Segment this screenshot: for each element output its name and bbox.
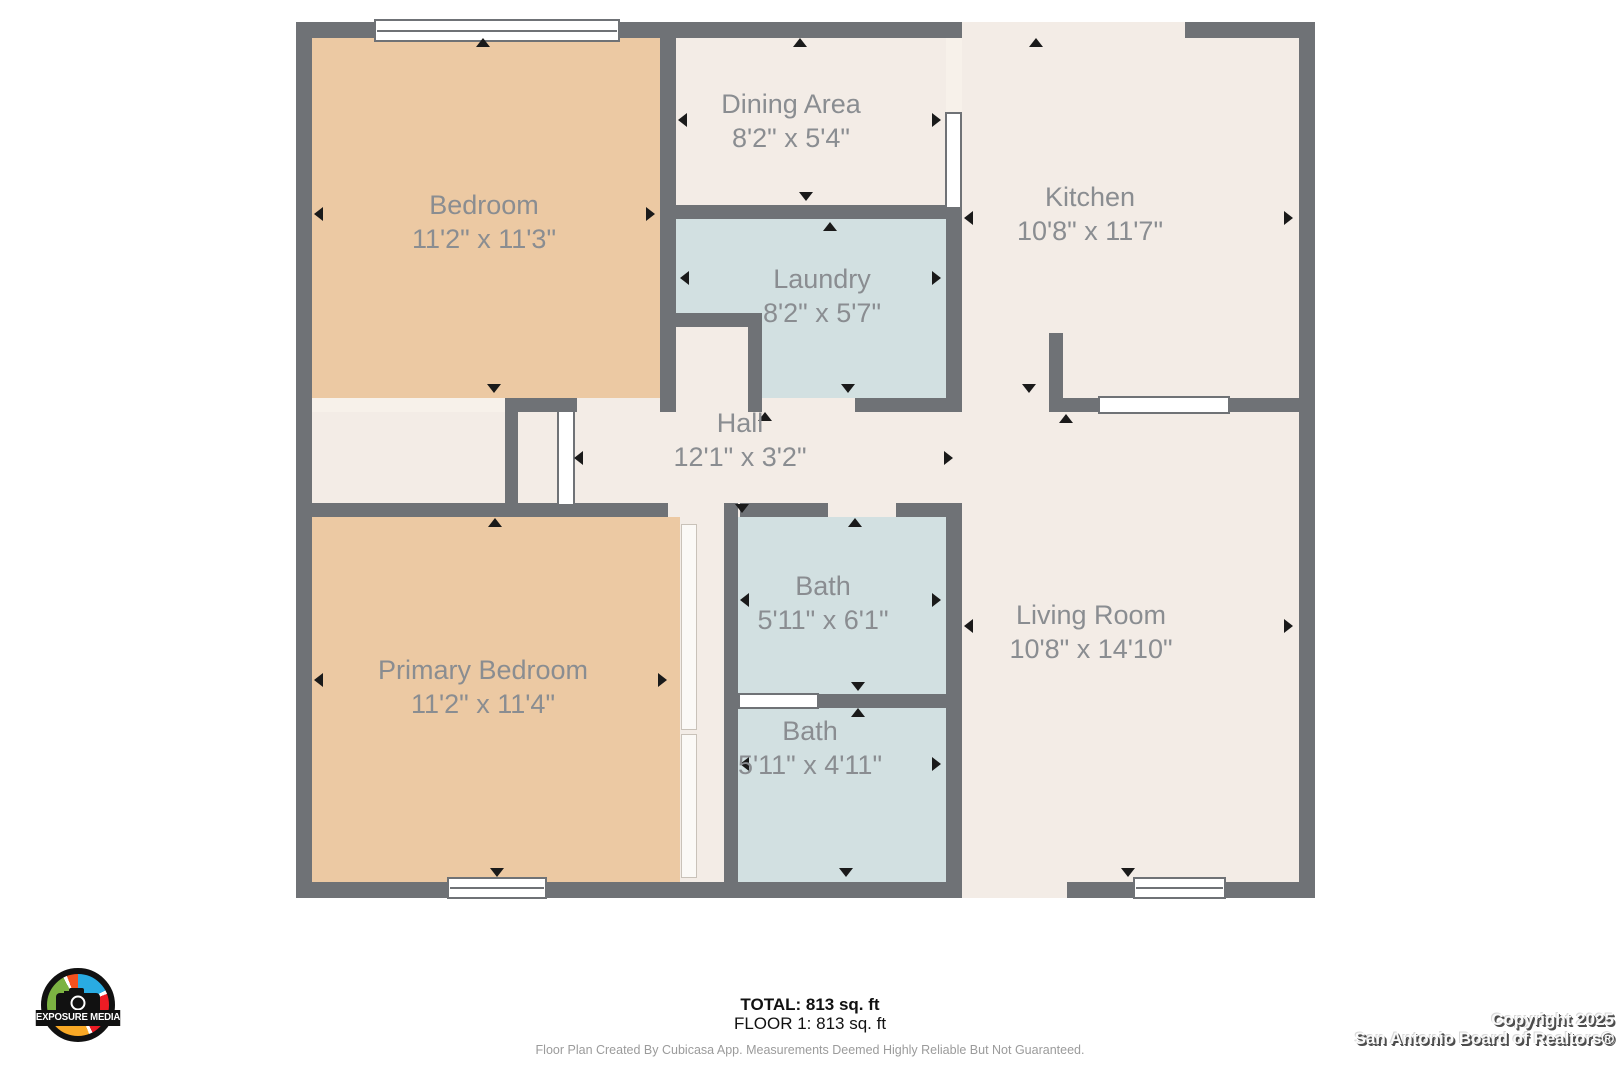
door-bath-divider: [738, 693, 819, 709]
wardrobe-primary-lower: [681, 734, 697, 878]
measure-arrow: [1059, 414, 1073, 423]
measure-arrow: [793, 38, 807, 47]
dining-open-boundary: [946, 38, 962, 114]
room-dims: 10'8" x 11'7": [1017, 214, 1163, 248]
room-dims: 5'11" x 6'1": [757, 603, 888, 637]
window-bedroom-top: [374, 19, 620, 42]
patio-opening: [962, 882, 1067, 898]
measure-arrow: [314, 673, 323, 687]
floor-plan-page: Bedroom 11'2" x 11'3" Dining Area 8'2" x…: [0, 0, 1620, 1080]
disclaimer-text: Floor Plan Created By Cubicasa App. Meas…: [536, 1043, 1085, 1057]
measure-arrow: [487, 384, 501, 393]
measure-arrow: [1029, 38, 1043, 47]
measure-arrow: [646, 207, 655, 221]
wall-nook-right: [748, 313, 762, 412]
window-living-bottom: [1133, 877, 1226, 899]
measure-arrow: [1284, 619, 1293, 633]
wall-bath-top-left: [740, 503, 828, 517]
wall-left: [296, 22, 312, 898]
door-dining-kitchen: [945, 112, 962, 209]
floor-area-text: FLOOR 1: 813 sq. ft: [734, 1014, 886, 1034]
laundry-nook: [676, 327, 748, 412]
measure-arrow: [823, 222, 837, 231]
room-dims: 11'2" x 11'3": [412, 222, 556, 256]
measure-arrow: [944, 451, 953, 465]
room-name: Bath: [738, 714, 882, 748]
measure-arrow: [841, 384, 855, 393]
room-name: Bedroom: [412, 188, 556, 222]
wall-bath-left: [724, 503, 738, 882]
entry-opening: [962, 22, 1185, 38]
measure-arrow: [1284, 211, 1293, 225]
measure-arrow: [476, 38, 490, 47]
room-name: Laundry: [763, 262, 881, 296]
measure-arrow: [488, 518, 502, 527]
room-name: Dining Area: [721, 87, 861, 121]
measure-arrow: [1022, 384, 1036, 393]
measure-arrow: [735, 504, 749, 513]
wall-bedroom-right: [660, 38, 676, 412]
room-name: Hall: [673, 406, 806, 440]
room-dims: 8'2" x 5'7": [763, 296, 881, 330]
copyright-line1: Copyright 2025: [1355, 1010, 1614, 1029]
measure-arrow: [680, 271, 689, 285]
measure-arrow: [932, 113, 941, 127]
room-dims: 8'2" x 5'4": [721, 121, 861, 155]
measure-arrow: [490, 868, 504, 877]
copyright-notice: Copyright 2025 San Antonio Board of Real…: [1355, 1010, 1614, 1048]
measure-arrow: [932, 757, 941, 771]
wall-laundry-bottom: [855, 398, 962, 412]
measure-arrow: [1121, 868, 1135, 877]
room-label-laundry: Laundry 8'2" x 5'7": [763, 262, 881, 330]
window-primary-bottom: [447, 877, 547, 899]
measure-arrow: [964, 619, 973, 633]
wall-bath-right: [946, 503, 962, 882]
room-label-hall: Hall 12'1" x 3'2": [673, 406, 806, 474]
exposure-media-logo: EXPOSURE MEDIA: [34, 966, 122, 1050]
room-label-primary-bedroom: Primary Bedroom 11'2" x 11'4": [378, 653, 588, 721]
kitchen-passthrough: [1098, 396, 1230, 414]
wall-dining-bottom: [676, 205, 962, 219]
room-dims: 10'8" x 14'10": [1009, 632, 1172, 666]
door-linen-closet: [557, 410, 575, 506]
room-name: Primary Bedroom: [378, 653, 588, 687]
closet-open-boundary: [312, 398, 505, 412]
room-label-bath-1: Bath 5'11" x 6'1": [757, 569, 888, 637]
room-label-dining: Dining Area 8'2" x 5'4": [721, 87, 861, 155]
room-name: Bath: [757, 569, 888, 603]
room-name: Kitchen: [1017, 180, 1163, 214]
measure-arrow: [658, 673, 667, 687]
measure-arrow: [740, 593, 749, 607]
logo-banner-text: EXPOSURE MEDIA: [36, 1010, 120, 1026]
measure-arrow: [678, 113, 687, 127]
copyright-line2: San Antonio Board of Realtors®: [1355, 1029, 1614, 1048]
measure-arrow: [932, 271, 941, 285]
room-label-kitchen: Kitchen 10'8" x 11'7": [1017, 180, 1163, 248]
room-dims: 5'11" x 4'11": [738, 748, 882, 782]
wall-laundry-right: [946, 219, 962, 412]
measure-arrow: [314, 207, 323, 221]
room-label-living-room: Living Room 10'8" x 14'10": [1009, 598, 1172, 666]
room-label-bedroom: Bedroom 11'2" x 11'3": [412, 188, 556, 256]
total-area-text: TOTAL: 813 sq. ft: [740, 995, 879, 1015]
room-name: Living Room: [1009, 598, 1172, 632]
room-label-bath-2: Bath 5'11" x 4'11": [738, 714, 882, 782]
measure-arrow: [799, 192, 813, 201]
wardrobe-primary-upper: [681, 524, 697, 730]
wall-hall-bottom-left: [296, 503, 668, 517]
measure-arrow: [848, 518, 862, 527]
measure-arrow: [851, 682, 865, 691]
measure-arrow: [574, 451, 583, 465]
wall-closet-divider: [505, 398, 518, 517]
measure-arrow: [932, 593, 941, 607]
measure-arrow: [839, 868, 853, 877]
room-dims: 12'1" x 3'2": [673, 440, 806, 474]
wall-bath-divider: [818, 694, 962, 708]
wall-right: [1299, 22, 1315, 898]
measure-arrow: [964, 211, 973, 225]
room-dims: 11'2" x 11'4": [378, 687, 588, 721]
